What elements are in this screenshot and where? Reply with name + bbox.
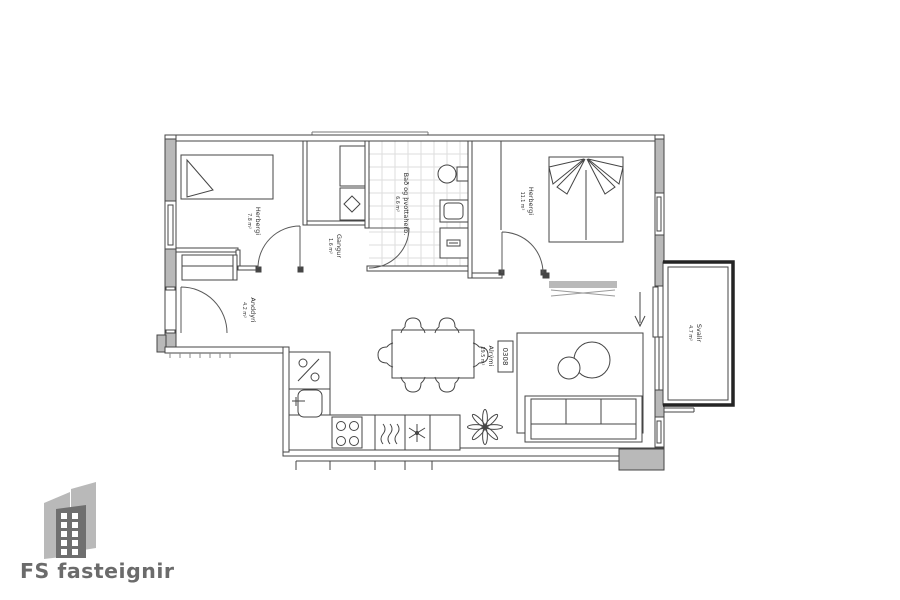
- stove: [332, 417, 362, 448]
- svg-text:Svalir: Svalir: [695, 324, 703, 343]
- unit-number-badge: 0308: [498, 341, 513, 372]
- window-living: [655, 417, 664, 447]
- wall-hatch-ticks: [170, 353, 230, 358]
- room-label-bedroom2: Herbergi 11.1 m²: [519, 187, 535, 215]
- room-label-hallway: Gangur 1.6 m²: [327, 234, 343, 258]
- cropped-lower-cabinets: [296, 461, 619, 470]
- svg-text:Bað og þvottaherb.: Bað og þvottaherb.: [402, 173, 410, 236]
- floor-plan: [157, 132, 733, 470]
- room-label-bedroom1: Herbergi 7.8 m²: [246, 207, 262, 235]
- dining-table: [392, 330, 474, 378]
- svg-text:Anddyri: Anddyri: [249, 297, 257, 322]
- svg-text:11.1 m²: 11.1 m²: [519, 192, 525, 211]
- svg-text:1.6 m²: 1.6 m²: [327, 238, 333, 254]
- svg-text:Alrými: Alrými: [487, 346, 495, 367]
- svg-text:6.6 m²: 6.6 m²: [394, 196, 400, 212]
- svg-text:Gangur: Gangur: [335, 234, 343, 258]
- room-label-bathroom: Bað og þvottaherb. 6.6 m²: [394, 173, 410, 236]
- room-label-entrance: Anddyri 4.2 m²: [241, 297, 257, 322]
- bedroom1-door: [258, 226, 300, 268]
- dining-chair: [401, 377, 425, 392]
- double-bed: [549, 157, 623, 242]
- svg-text:Herbergi: Herbergi: [527, 187, 535, 215]
- svg-text:29.5 m²: 29.5 m²: [479, 347, 485, 366]
- bedroom2-door: [502, 232, 543, 273]
- direction-arrow: [635, 292, 645, 326]
- toilet: [438, 165, 468, 183]
- entrance-door: [181, 287, 227, 333]
- buildings-icon: [44, 482, 96, 559]
- svg-text:Herbergi: Herbergi: [254, 207, 262, 235]
- dining-chair: [378, 343, 393, 367]
- company-logo: FS fasteignir: [20, 482, 175, 583]
- window-left: [165, 201, 176, 249]
- closet-shaft: [340, 146, 365, 220]
- plant: [468, 410, 503, 445]
- coffee-table-small: [558, 357, 580, 379]
- bathroom-fixtures: [438, 165, 468, 258]
- bathroom-sink: [440, 200, 468, 222]
- living-area: [468, 292, 646, 445]
- svg-text:4.7 m²: 4.7 m²: [687, 325, 693, 341]
- washing-machine: [440, 228, 468, 258]
- window-bedroom2: [655, 193, 664, 235]
- svg-text:0308: 0308: [501, 348, 509, 366]
- single-bed: [181, 155, 273, 199]
- svg-text:4.2 m²: 4.2 m²: [241, 302, 247, 318]
- dining-chair: [435, 377, 459, 392]
- floorplan-page: Herbergi 7.8 m² Gangur 1.6 m² Bað og þvo…: [0, 0, 900, 600]
- svg-text:7.8 m²: 7.8 m²: [246, 213, 252, 229]
- dining-set: [378, 318, 488, 392]
- neighbor-wall-stub: [664, 408, 694, 412]
- sliding-partition: [549, 281, 617, 296]
- sofa: [525, 396, 642, 442]
- room-label-living: Alrými 29.5 m²: [479, 346, 495, 367]
- entrance-wardrobe: [182, 255, 237, 280]
- logo-wordmark: FS fasteignir: [20, 559, 175, 583]
- floorplan-image: Herbergi 7.8 m² Gangur 1.6 m² Bað og þvo…: [0, 0, 900, 600]
